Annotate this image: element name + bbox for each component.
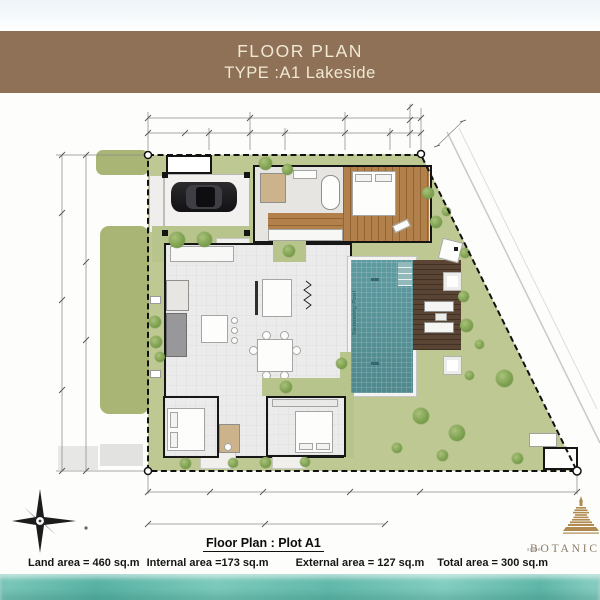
compass-rose-icon bbox=[3, 488, 93, 566]
pagoda-logo-icon bbox=[563, 496, 599, 540]
floor-plan-page: FLOOR PLAN TYPE :A1 Lakeside bbox=[0, 0, 600, 600]
